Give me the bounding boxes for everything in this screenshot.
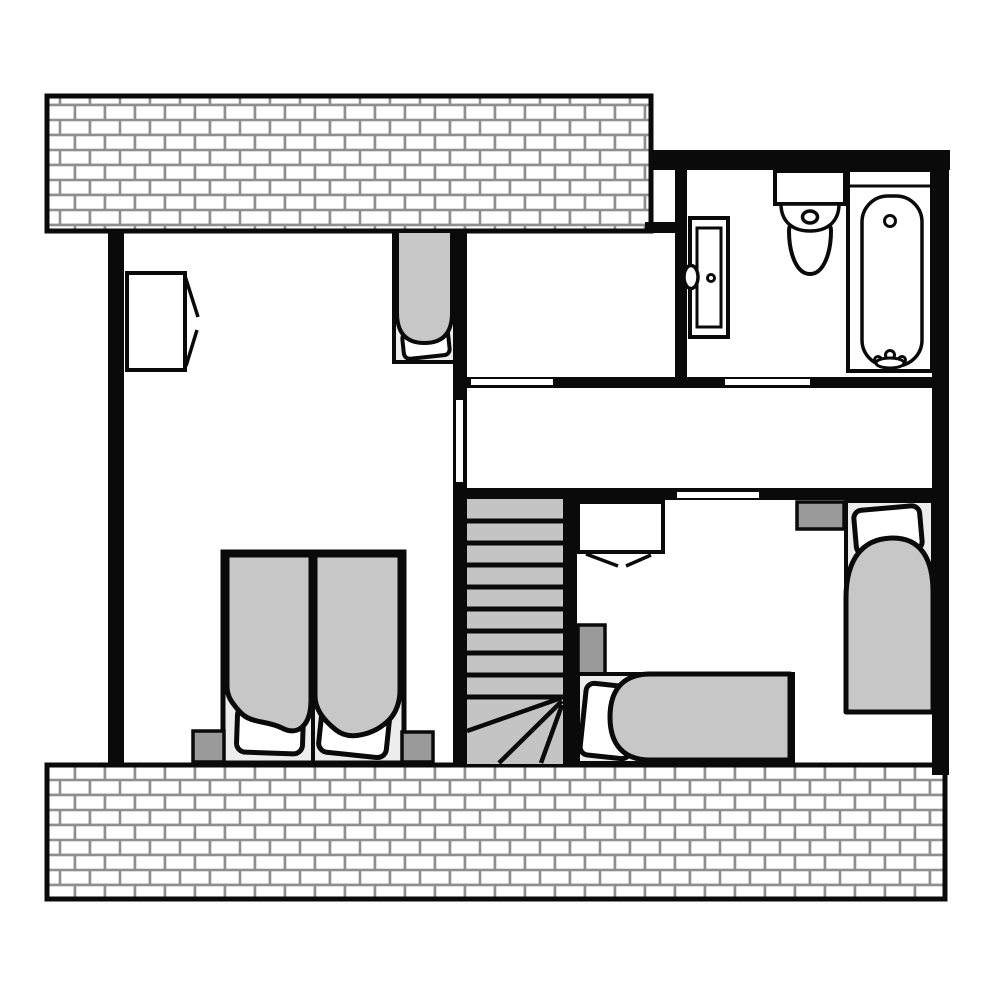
floor-plan-drawing (0, 0, 1000, 1000)
brick-wall-bottom (47, 765, 945, 899)
door-opening-bathroom (725, 379, 810, 385)
tall-cabinet (684, 218, 728, 337)
toilet-flush-button (803, 211, 818, 223)
bathtub (848, 170, 932, 371)
wardrobe (127, 273, 185, 370)
wall-left-exterior (108, 231, 124, 764)
toilet-tank (775, 171, 845, 204)
single-bed-vertical (846, 501, 933, 712)
cot-duvet (397, 231, 452, 343)
wardrobe-2 (578, 502, 663, 552)
nightstand-right (402, 732, 433, 762)
cot-bed (394, 231, 455, 362)
door-opening-bedroom-right (677, 492, 759, 498)
single-bed-h-duvet (610, 674, 790, 760)
door-opening-bedroom-left (456, 400, 463, 482)
bathtub-drain (885, 216, 896, 227)
single-bed-horizontal (578, 674, 793, 763)
nightstand-top (797, 502, 844, 529)
cabinet-handle (684, 266, 698, 289)
double-bed-duvet-right (315, 555, 400, 736)
single-bed-v-duvet (846, 538, 933, 712)
wall-top-right (650, 150, 950, 170)
cabinet-knob (708, 275, 715, 282)
double-bed (223, 552, 404, 763)
wall-brick-connector (645, 222, 679, 233)
brick-wall-top (47, 96, 651, 231)
nightstand-left (193, 731, 224, 762)
wall-stairs-right (563, 499, 577, 764)
floor-plan-canvas (0, 0, 1000, 1000)
nightstand-side (578, 625, 605, 674)
door-opening-room-top (471, 379, 553, 385)
double-bed-duvet-left (227, 555, 311, 731)
staircase (467, 499, 563, 764)
